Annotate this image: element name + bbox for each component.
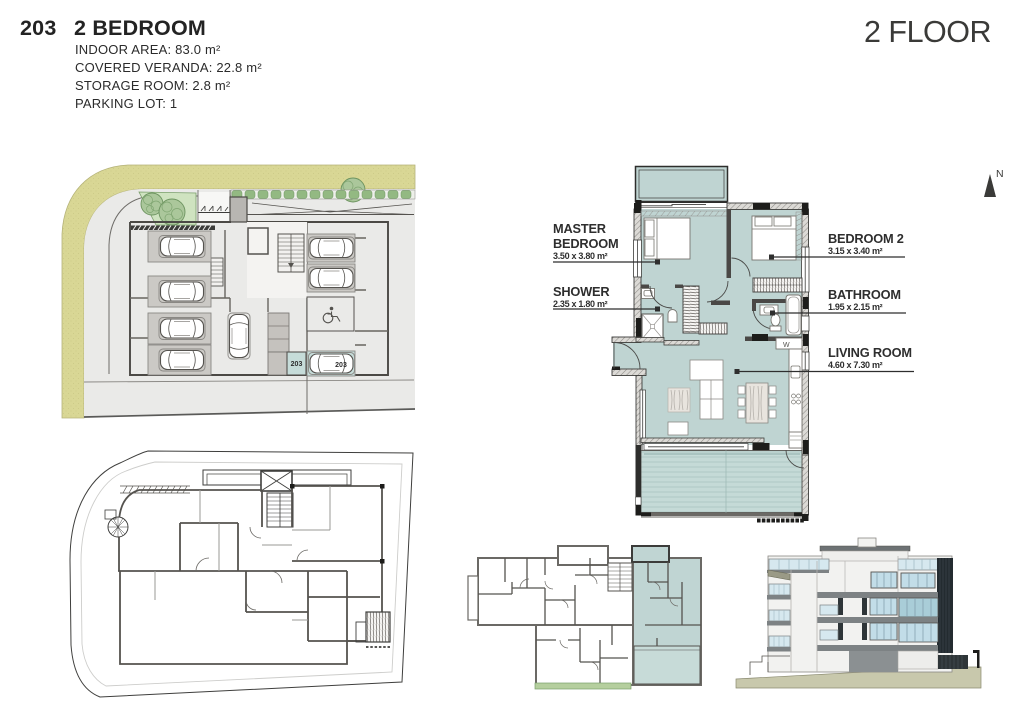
svg-text:N: N xyxy=(996,168,1004,180)
svg-text:W: W xyxy=(783,342,790,349)
svg-text:203: 203 xyxy=(291,361,303,368)
svg-text:203: 203 xyxy=(335,362,347,369)
